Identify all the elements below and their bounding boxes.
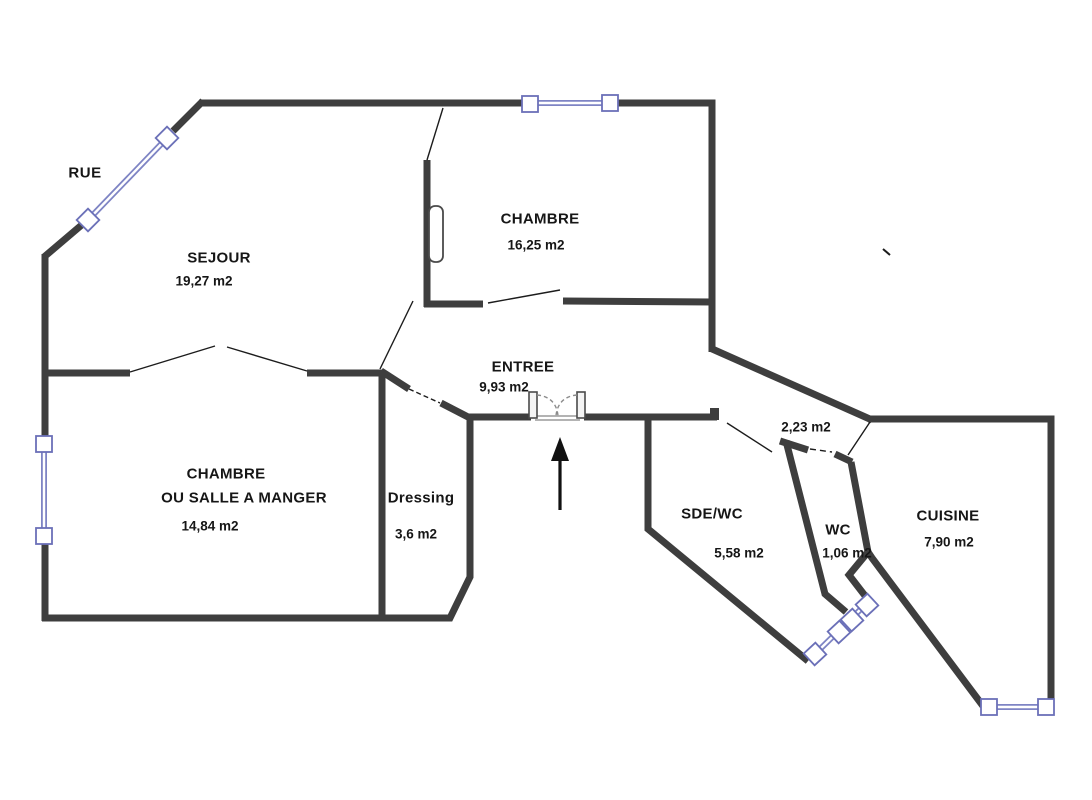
door-line-chambre	[427, 108, 443, 160]
floor-plan-drawing	[0, 0, 1092, 800]
room-area-dressing: 3,6 m2	[395, 527, 437, 541]
walls	[42, 101, 1051, 710]
window-icon-kitchen	[981, 699, 1054, 715]
room-area-wc: 1,06 m2	[822, 546, 872, 560]
room-area-chambre2: 14,84 m2	[181, 519, 238, 533]
room-label-sde-wc: SDE/WC	[681, 507, 743, 522]
wall-wc-right	[849, 462, 868, 597]
room-label-chambre2-line1: CHAMBRE	[187, 467, 266, 482]
floor-plan: RUE SEJOUR 19,27 m2 CHAMBRE 16,25 m2 ENT…	[0, 0, 1092, 800]
room-label-wc: WC	[825, 523, 851, 538]
door-swing-lines	[130, 108, 890, 455]
room-area-chambre: 16,25 m2	[507, 238, 564, 252]
room-area-entree: 9,93 m2	[479, 380, 529, 394]
room-label-entree: ENTREE	[492, 360, 555, 375]
room-label-dressing: Dressing	[388, 491, 455, 506]
radiator-symbol	[429, 206, 443, 262]
room-label-chambre: CHAMBRE	[501, 212, 580, 227]
window-icon-left	[36, 436, 52, 544]
room-label-sejour: SEJOUR	[187, 251, 251, 266]
stray-mark	[883, 249, 890, 255]
street-label: RUE	[68, 166, 101, 181]
window-icon-top	[522, 95, 618, 112]
wall-chamber-right	[612, 103, 712, 352]
wall-corridor-diagonal	[710, 348, 872, 420]
entrance-arrow-icon	[551, 437, 569, 510]
wall-cuisine	[868, 419, 1051, 710]
room-label-cuisine: CUISINE	[917, 509, 980, 524]
room-area-couloir: 2,23 m2	[781, 420, 831, 434]
entrance-door-icon	[529, 392, 585, 420]
room-area-sejour: 19,27 m2	[175, 274, 232, 288]
wall-sdewc	[648, 414, 808, 661]
room-area-cuisine: 7,90 m2	[924, 535, 974, 549]
room-label-chambre2-line2: OU SALLE A MANGER	[161, 491, 327, 506]
room-area-sde-wc: 5,58 m2	[714, 546, 764, 560]
door-line-sejour-entree	[380, 301, 413, 369]
